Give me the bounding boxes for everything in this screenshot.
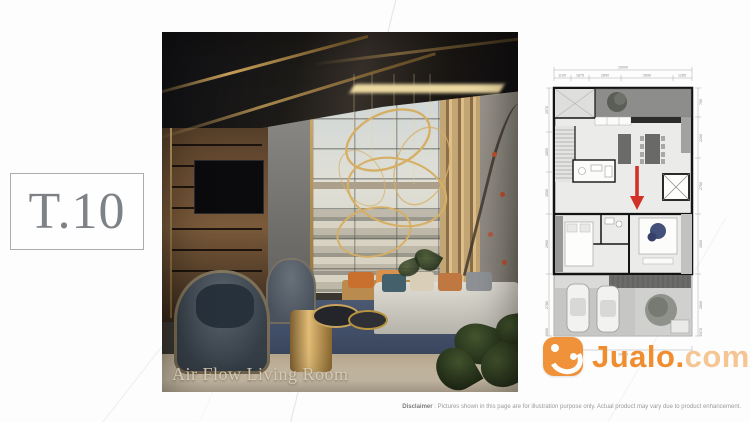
svg-text:1500: 1500 bbox=[545, 189, 549, 197]
svg-text:2900: 2900 bbox=[545, 240, 549, 248]
floor-plan: 10000 1100 1875 2850 2890 1285 2970 2850… bbox=[545, 62, 710, 372]
svg-text:2890: 2890 bbox=[643, 74, 651, 78]
smiley-dot bbox=[570, 353, 577, 360]
svg-text:2750: 2750 bbox=[699, 182, 703, 190]
svg-text:3000: 3000 bbox=[545, 328, 549, 336]
svg-text:1875: 1875 bbox=[576, 74, 584, 78]
photo-vignette bbox=[162, 32, 518, 392]
deck-band bbox=[609, 275, 691, 288]
jualo-smiley-icon bbox=[543, 337, 583, 376]
stairs bbox=[555, 126, 575, 182]
svg-text:1100: 1100 bbox=[558, 74, 566, 78]
svg-text:2970: 2970 bbox=[699, 328, 703, 336]
svg-text:2780: 2780 bbox=[545, 301, 549, 309]
svg-text:1500: 1500 bbox=[699, 240, 703, 248]
svg-text:2200: 2200 bbox=[699, 134, 703, 142]
garden-patio bbox=[635, 288, 691, 335]
svg-text:2970: 2970 bbox=[545, 106, 549, 114]
brand-name: Jualo bbox=[592, 339, 675, 374]
brand-tld: com bbox=[685, 339, 750, 374]
svg-text:2800: 2800 bbox=[699, 301, 703, 309]
unit-type-badge: T.10 bbox=[10, 173, 144, 250]
unit-type-label: T.10 bbox=[29, 186, 126, 238]
elevator-shaft bbox=[663, 174, 689, 200]
jualo-wordmark: Jualo.com bbox=[592, 341, 750, 372]
marketing-slide: T.10 bbox=[0, 0, 750, 422]
svg-text:2850: 2850 bbox=[601, 74, 609, 78]
svg-text:1285: 1285 bbox=[678, 74, 686, 78]
brand-dot: . bbox=[675, 339, 684, 374]
svg-text:2850: 2850 bbox=[545, 148, 549, 156]
kitchen-dining-furniture bbox=[618, 134, 665, 164]
disclaimer-body: : Pictures shown in this page are for il… bbox=[433, 404, 741, 410]
photo-caption: Air Flow Living Room bbox=[172, 364, 349, 385]
disclaimer-text: Disclaimer : Pictures shown in this page… bbox=[402, 404, 741, 410]
jualo-watermark: Jualo.com bbox=[543, 337, 750, 376]
carport bbox=[555, 284, 635, 335]
bathroom-1 bbox=[573, 160, 615, 182]
svg-text:780: 780 bbox=[699, 99, 703, 105]
disclaimer-label: Disclaimer bbox=[402, 404, 432, 410]
living-room-photo: Air Flow Living Room bbox=[162, 32, 518, 392]
svg-text:10000: 10000 bbox=[618, 66, 628, 70]
